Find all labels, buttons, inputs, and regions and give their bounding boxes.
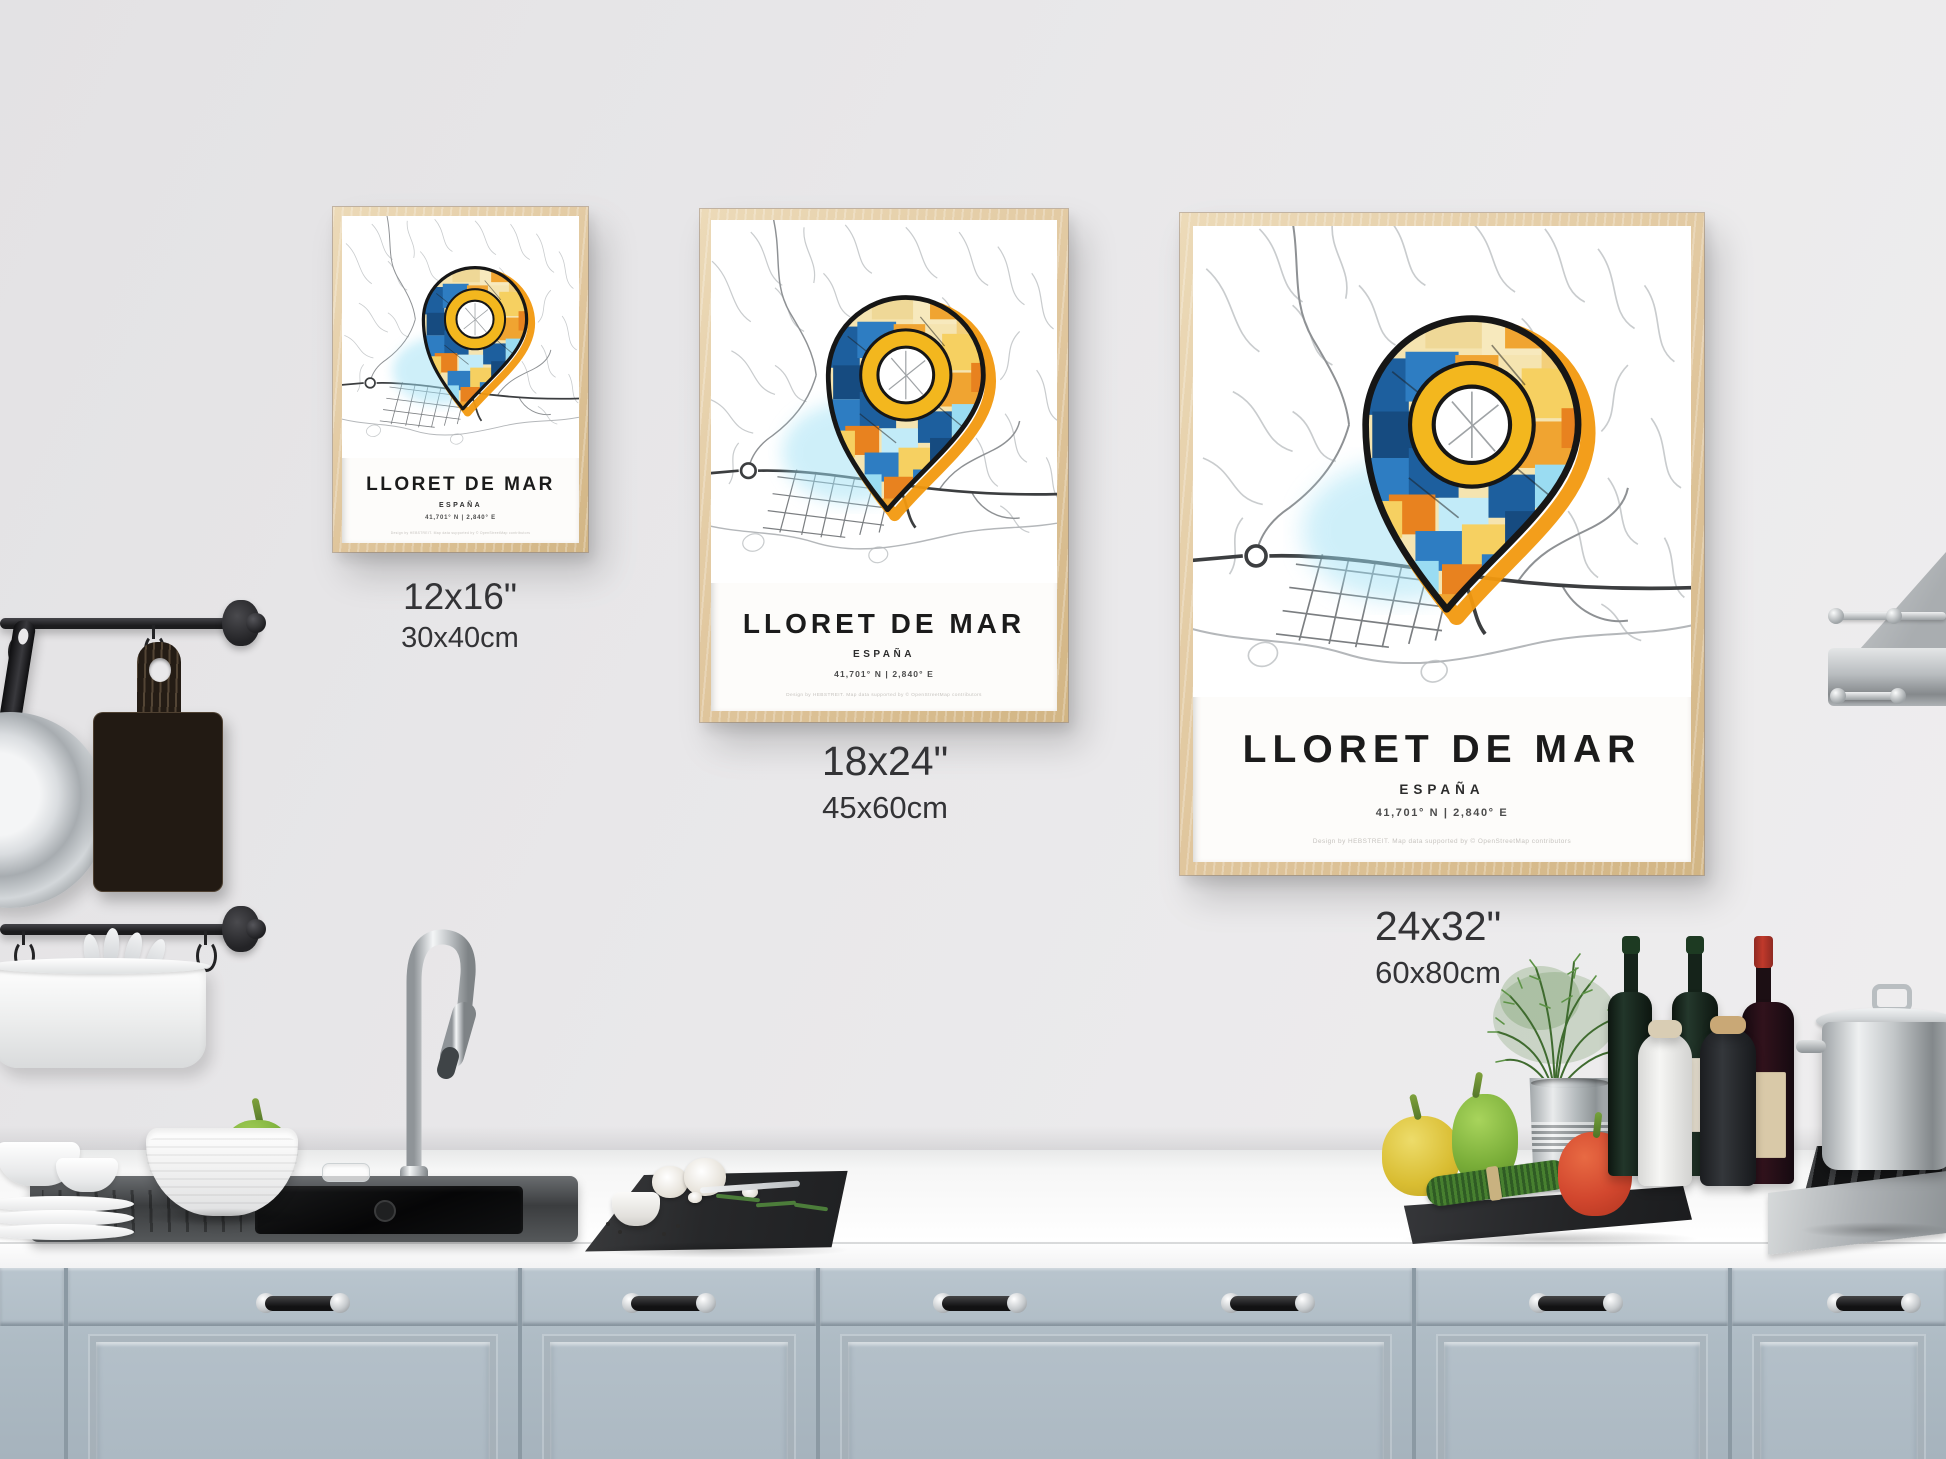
poster-coordinates: 41,701° N | 2,840° E bbox=[342, 515, 579, 521]
poster-credit: Design by HEBSTREIT. Map data supported … bbox=[342, 531, 579, 535]
cabinet-drawer-unit bbox=[820, 1268, 1412, 1459]
utensil-bucket bbox=[0, 964, 206, 1068]
garlic-clove bbox=[688, 1192, 702, 1203]
hood-rail-ball bbox=[1886, 608, 1902, 624]
grinder-cap bbox=[1648, 1020, 1682, 1038]
hood-rail-ball bbox=[1828, 608, 1844, 624]
size-inches: 12x16" bbox=[401, 576, 519, 618]
drawer-handle bbox=[933, 1291, 1027, 1315]
drawer-handle bbox=[256, 1291, 350, 1315]
poster-paper: LLORET DE MAR ESPAÑA 41,701° N | 2,840° … bbox=[1193, 226, 1691, 862]
hanging-cutting-board bbox=[93, 642, 223, 892]
wall-rail-top bbox=[0, 618, 250, 629]
poster-small-12x16: LLORET DE MAR ESPAÑA 41,701° N | 2,840° … bbox=[333, 207, 588, 552]
map-artwork bbox=[342, 216, 579, 458]
poster-country: ESPAÑA bbox=[711, 649, 1057, 660]
map-artwork bbox=[711, 220, 1057, 583]
poster-medium-18x24: LLORET DE MAR ESPAÑA 41,701° N | 2,840° … bbox=[700, 209, 1068, 722]
cabinet-door bbox=[0, 1268, 64, 1459]
pot-handle bbox=[1796, 1040, 1826, 1053]
size-cm: 30x40cm bbox=[401, 622, 519, 655]
grinder-cap bbox=[1710, 1016, 1746, 1034]
poster-country: ESPAÑA bbox=[342, 502, 579, 509]
poster-title: LLORET DE MAR bbox=[711, 608, 1057, 640]
drawer-handle bbox=[1529, 1291, 1623, 1315]
object-shadow bbox=[1400, 1230, 1700, 1248]
cooking-pot bbox=[1822, 1022, 1946, 1170]
peppercorn bbox=[662, 1232, 666, 1236]
poster-country: ESPAÑA bbox=[1193, 782, 1691, 797]
size-inches: 18x24" bbox=[822, 738, 948, 785]
object-shadow bbox=[140, 1208, 310, 1226]
white-pepper-grinder bbox=[1638, 1032, 1692, 1186]
drawer-handle bbox=[622, 1291, 716, 1315]
object-shadow bbox=[1800, 1222, 1946, 1238]
poster-coordinates: 41,701° N | 2,840° E bbox=[1193, 807, 1691, 819]
object-shadow bbox=[590, 1242, 850, 1258]
hood-rail-ball bbox=[1830, 688, 1846, 704]
size-label-12x16: 12x16" 30x40cm bbox=[401, 576, 519, 655]
poster-paper: LLORET DE MAR ESPAÑA 41,701° N | 2,840° … bbox=[711, 220, 1057, 711]
peppercorn bbox=[636, 1226, 640, 1230]
kitchen-mockup-scene: LLORET DE MAR ESPAÑA 41,701° N | 2,840° … bbox=[0, 0, 1946, 1459]
drawer-handle bbox=[1827, 1291, 1921, 1315]
drawer-handle bbox=[1221, 1291, 1315, 1315]
frying-pan bbox=[0, 712, 108, 908]
size-cm: 45x60cm bbox=[822, 790, 948, 826]
kitchen-faucet bbox=[392, 922, 492, 1184]
size-inches: 24x32" bbox=[1375, 903, 1501, 950]
wine-bottle-cap bbox=[1754, 936, 1773, 968]
poster-credit: Design by HEBSTREIT. Map data supported … bbox=[1193, 838, 1691, 845]
peppercorn bbox=[618, 1230, 622, 1234]
poster-title: LLORET DE MAR bbox=[342, 474, 579, 496]
glass-soap-dish bbox=[322, 1163, 370, 1182]
rail-knob bbox=[246, 919, 266, 939]
size-label-18x24: 18x24" 45x60cm bbox=[822, 738, 948, 826]
hood-rail-ball bbox=[1890, 688, 1906, 704]
olive-oil-bottle-cap bbox=[1686, 936, 1704, 954]
poster-credit: Design by HEBSTREIT. Map data supported … bbox=[711, 693, 1057, 698]
poster-coordinates: 41,701° N | 2,840° E bbox=[711, 669, 1057, 679]
sink-drain bbox=[374, 1200, 396, 1222]
peppercorn bbox=[606, 1222, 610, 1226]
map-artwork bbox=[1193, 226, 1691, 697]
black-pepper-grinder bbox=[1700, 1028, 1756, 1186]
peppercorn bbox=[676, 1224, 680, 1228]
range-hood bbox=[1852, 552, 1946, 658]
olive-oil-bottle-cap bbox=[1622, 936, 1640, 954]
poster-paper: LLORET DE MAR ESPAÑA 41,701° N | 2,840° … bbox=[342, 216, 579, 543]
poster-large-24x32: LLORET DE MAR ESPAÑA 41,701° N | 2,840° … bbox=[1180, 213, 1704, 875]
wall-rail-bottom bbox=[0, 924, 250, 935]
rail-knob bbox=[246, 613, 266, 633]
poster-title: LLORET DE MAR bbox=[1193, 728, 1691, 772]
